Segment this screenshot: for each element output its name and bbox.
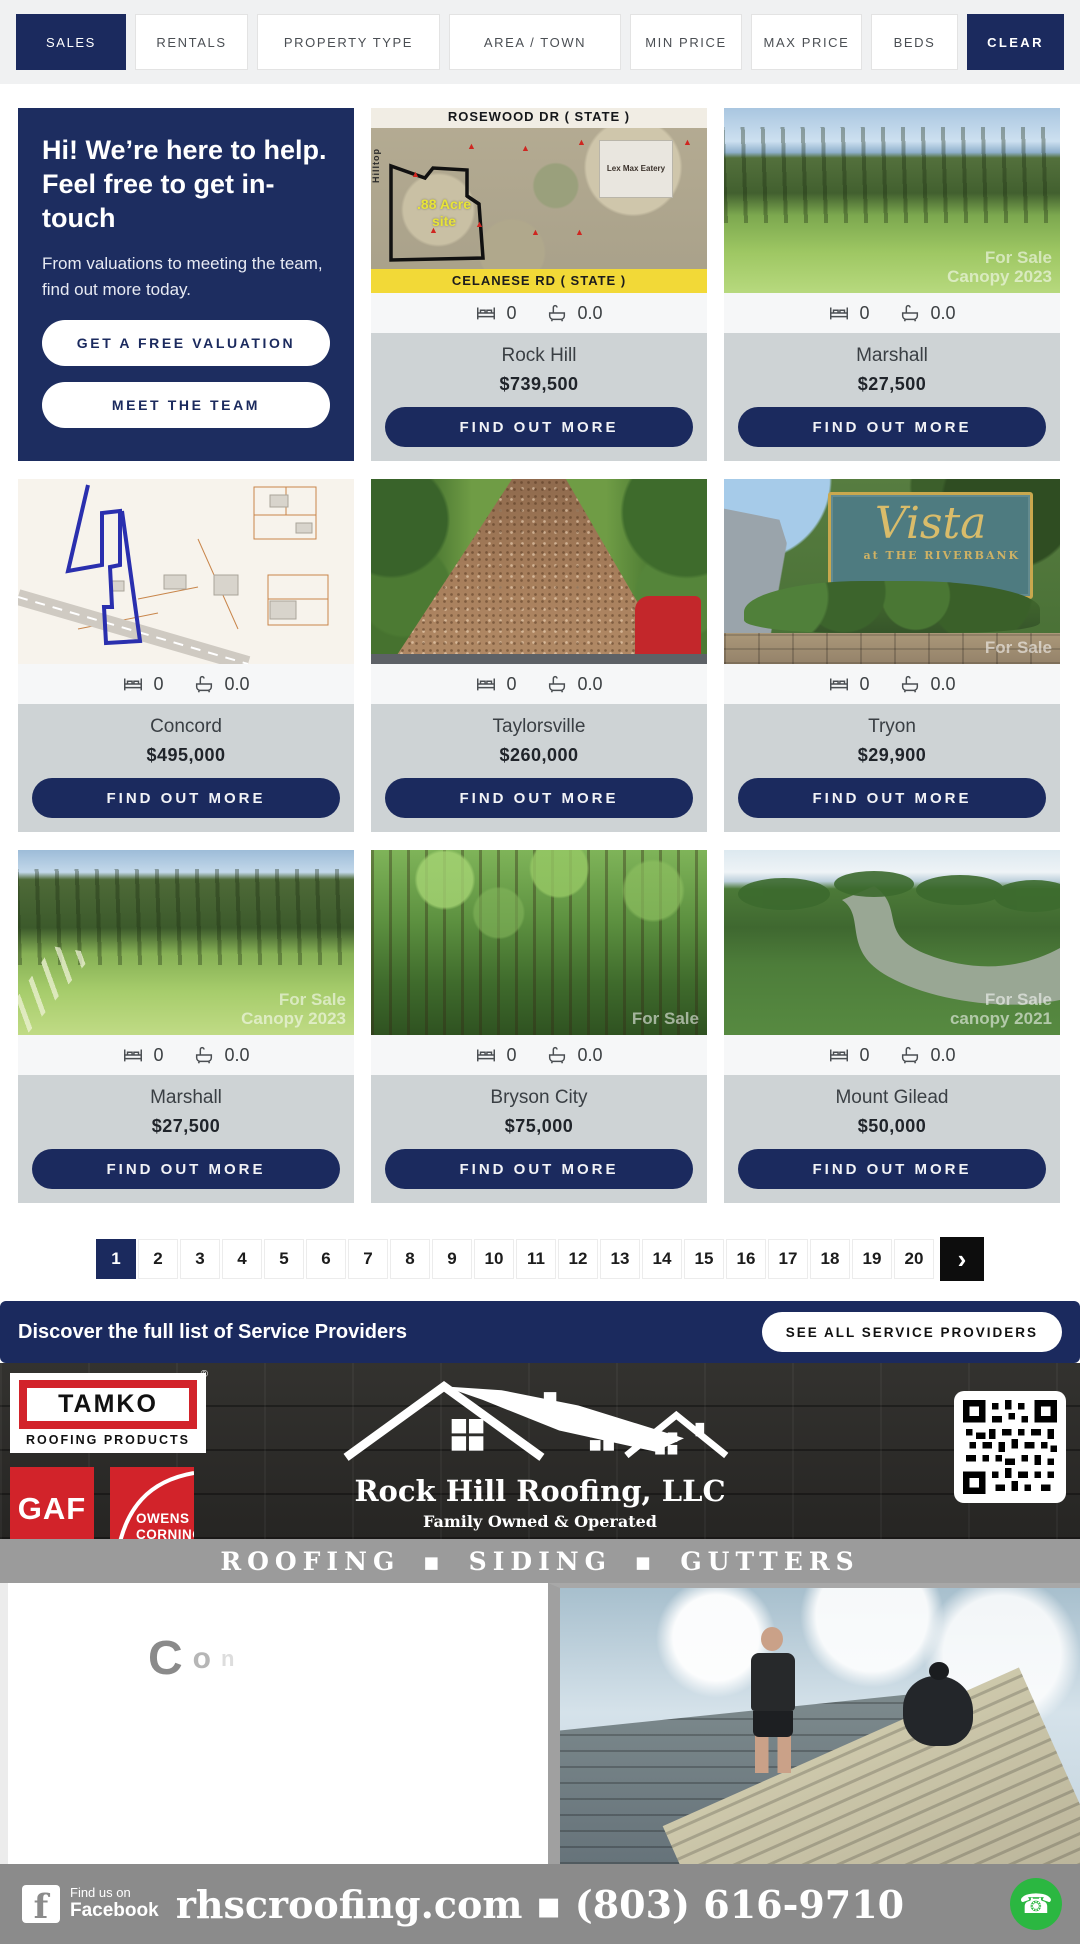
listing-info: Marshall $27,500 FIND OUT MORE xyxy=(724,333,1060,461)
meet-team-button[interactable]: MEET THE TEAM xyxy=(42,382,330,428)
listing-info: Marshall $27,500 FIND OUT MORE xyxy=(18,1075,354,1203)
find-out-more-button[interactable]: FIND OUT MORE xyxy=(32,1149,340,1189)
page-button-8[interactable]: 8 xyxy=(390,1239,430,1279)
bath-icon xyxy=(546,302,568,324)
page-button-4[interactable]: 4 xyxy=(222,1239,262,1279)
map-road-label-top: ROSEWOOD DR ( STATE ) xyxy=(371,108,707,128)
map-marker-icon: ▲ xyxy=(429,226,438,235)
baths-stat: 0.0 xyxy=(899,302,955,324)
listing-stats: 0 0.0 xyxy=(724,1035,1060,1075)
photo-watermark: For Sale xyxy=(632,1009,699,1029)
baths-stat: 0.0 xyxy=(899,673,955,695)
bed-icon xyxy=(828,673,850,695)
facebook-link[interactable]: f Find us on Facebook xyxy=(22,1885,159,1923)
page-button-13[interactable]: 13 xyxy=(600,1239,640,1279)
listing-stats: 0 0.0 xyxy=(371,1035,707,1075)
find-out-more-button[interactable]: FIND OUT MORE xyxy=(738,407,1046,447)
promo-body: From valuations to meeting the team, fin… xyxy=(42,251,330,302)
page-button-1[interactable]: 1 xyxy=(96,1239,136,1279)
listing-stats: 0 0.0 xyxy=(724,293,1060,333)
listing-photo[interactable]: For SaleCanopy 2023 xyxy=(18,850,354,1035)
roofer-standing xyxy=(747,1627,801,1777)
beds-stat: 0 xyxy=(122,673,163,695)
promo-heading: Hi! We’re here to help. Feel free to get… xyxy=(42,134,330,235)
bath-icon xyxy=(546,673,568,695)
get-valuation-button[interactable]: GET A FREE VALUATION xyxy=(42,320,330,366)
listing-info: Rock Hill $739,500 FIND OUT MORE xyxy=(371,333,707,461)
listing-stats: 0 0.0 xyxy=(371,664,707,704)
find-out-more-button[interactable]: FIND OUT MORE xyxy=(738,778,1046,818)
baths-stat: 0.0 xyxy=(546,673,602,695)
listing-photo[interactable]: Vista at THE RIVERBANK For Sale xyxy=(724,479,1060,664)
listing-stats: 0 0.0 xyxy=(18,664,354,704)
loading-text-panel: C o n xyxy=(8,1583,548,1864)
listing-photo[interactable]: For Salecanopy 2021 xyxy=(724,850,1060,1035)
listing-card: For SaleCanopy 2023 0 0.0 Marshall $27,5… xyxy=(18,850,354,1203)
listing-card: For Salecanopy 2021 0 0.0 Mount Gilead $… xyxy=(724,850,1060,1203)
lake-drawing xyxy=(724,850,1060,1035)
listing-town: Marshall xyxy=(738,345,1046,367)
chevron-right-icon: › xyxy=(958,1244,967,1275)
gaf-logo: GAF xyxy=(10,1467,94,1539)
sign-title: Vista xyxy=(841,501,1020,547)
map-marker-icon: ▲ xyxy=(577,138,586,147)
filter-max-price-dropdown[interactable]: MAX PRICE xyxy=(751,14,862,70)
listing-photo[interactable]: For SaleCanopy 2023 xyxy=(724,108,1060,293)
listing-photo[interactable] xyxy=(371,479,707,664)
beds-stat: 0 xyxy=(475,673,516,695)
listing-town: Mount Gilead xyxy=(738,1087,1046,1109)
find-out-more-button[interactable]: FIND OUT MORE xyxy=(385,407,693,447)
map-marker-icon: ▲ xyxy=(411,170,420,179)
bath-icon xyxy=(899,673,921,695)
pagination: 1234567891011121314151617181920 › xyxy=(0,1237,1080,1281)
listing-price: $29,900 xyxy=(738,745,1046,766)
filter-property-type-dropdown[interactable]: PROPERTY TYPE xyxy=(257,14,440,70)
beds-stat: 0 xyxy=(122,1044,163,1066)
bed-icon xyxy=(475,1044,497,1066)
baths-stat: 0.0 xyxy=(899,1044,955,1066)
listing-price: $739,500 xyxy=(385,374,693,395)
listing-town: Taylorsville xyxy=(385,716,693,738)
brand-logos: ® TAMKO ROOFING PRODUCTS GAF OWENS CORNI… xyxy=(10,1373,206,1539)
map-marker-icon: ▲ xyxy=(683,138,692,147)
photo-watermark: For SaleCanopy 2023 xyxy=(241,990,346,1029)
bed-icon xyxy=(122,1044,144,1066)
listing-card: 0 0.0 Concord $495,000 FIND OUT MORE xyxy=(18,479,354,832)
listing-stats: 0 0.0 xyxy=(371,293,707,333)
filter-area-town-dropdown[interactable]: AREA / TOWN xyxy=(449,14,621,70)
truck-hood xyxy=(635,596,701,656)
listing-card: For SaleCanopy 2023 0 0.0 Marshall $27,5… xyxy=(724,108,1060,461)
roofers-photo xyxy=(548,1583,1080,1864)
see-all-providers-button[interactable]: SEE ALL SERVICE PROVIDERS xyxy=(762,1312,1062,1352)
page-button-15[interactable]: 15 xyxy=(684,1239,724,1279)
stone-wall xyxy=(724,633,1060,664)
page-button-7[interactable]: 7 xyxy=(348,1239,388,1279)
filter-bar: SALES RENTALS PROPERTY TYPE AREA / TOWN … xyxy=(0,0,1080,84)
bath-icon xyxy=(546,1044,568,1066)
service-providers-banner: Discover the full list of Service Provid… xyxy=(0,1301,1080,1363)
listings-grid: Hi! We’re here to help. Feel free to get… xyxy=(0,84,1080,1203)
listing-price: $495,000 xyxy=(32,745,340,766)
whatsapp-icon: ☎ xyxy=(1019,1889,1053,1920)
listing-price: $75,000 xyxy=(385,1116,693,1137)
page-button-17[interactable]: 17 xyxy=(768,1239,808,1279)
bath-icon xyxy=(193,1044,215,1066)
roofing-company-tagline: Family Owned & Operated xyxy=(320,1512,760,1531)
facebook-icon: f xyxy=(22,1885,60,1923)
services-band-text: ROOFING ▪ SIDING ▪ GUTTERS xyxy=(220,1547,859,1576)
bed-icon xyxy=(828,302,850,324)
roofer-crouching xyxy=(903,1676,973,1746)
pagination-pages: 1234567891011121314151617181920 xyxy=(96,1239,934,1279)
listing-town: Rock Hill xyxy=(385,345,693,367)
page-button-11[interactable]: 11 xyxy=(516,1239,556,1279)
listing-info: Bryson City $75,000 FIND OUT MORE xyxy=(371,1075,707,1203)
plat-map-drawing xyxy=(18,479,354,664)
find-out-more-button[interactable]: FIND OUT MORE xyxy=(385,778,693,818)
page-button-14[interactable]: 14 xyxy=(642,1239,682,1279)
filter-clear-button[interactable]: CLEAR xyxy=(967,14,1064,70)
filter-tab-sales[interactable]: SALES xyxy=(16,14,126,70)
map-road-label-bottom: CELANESE RD ( STATE ) xyxy=(371,269,707,293)
listing-card: Vista at THE RIVERBANK For Sale 0 0.0 Tr… xyxy=(724,479,1060,832)
building-label: Lex Max Eatery xyxy=(599,140,673,198)
facebook-find-us: Find us on xyxy=(70,1886,159,1900)
owens-corning-logo: OWENS CORNING xyxy=(110,1467,194,1539)
roofline-logo-icon xyxy=(330,1371,750,1467)
roofing-company-lockup: Rock Hill Roofing, LLC Family Owned & Op… xyxy=(320,1371,760,1531)
acreage-label: .88 Acre site xyxy=(409,196,479,230)
listing-photo[interactable]: For Sale xyxy=(371,850,707,1035)
page-button-3[interactable]: 3 xyxy=(180,1239,220,1279)
listing-price: $27,500 xyxy=(32,1116,340,1137)
pagination-next-button[interactable]: › xyxy=(940,1237,984,1281)
listing-stats: 0 0.0 xyxy=(724,664,1060,704)
beds-stat: 0 xyxy=(828,302,869,324)
photo-watermark: For SaleCanopy 2023 xyxy=(947,248,1052,287)
page-button-20[interactable]: 20 xyxy=(894,1239,934,1279)
page-button-9[interactable]: 9 xyxy=(432,1239,472,1279)
page-button-18[interactable]: 18 xyxy=(810,1239,850,1279)
providers-banner-text: Discover the full list of Service Provid… xyxy=(18,1321,407,1344)
facebook-label: Facebook xyxy=(70,1901,159,1922)
baths-stat: 0.0 xyxy=(546,302,602,324)
whatsapp-button[interactable]: ☎ xyxy=(1010,1878,1062,1930)
page-button-10[interactable]: 10 xyxy=(474,1239,514,1279)
filter-beds-dropdown[interactable]: BEDS xyxy=(871,14,958,70)
bath-icon xyxy=(193,673,215,695)
bed-icon xyxy=(475,673,497,695)
listing-photo[interactable]: ROSEWOOD DR ( STATE ) Hilltop .88 Acre s… xyxy=(371,108,707,293)
page-button-12[interactable]: 12 xyxy=(558,1239,598,1279)
bath-icon xyxy=(899,302,921,324)
listing-town: Bryson City xyxy=(385,1087,693,1109)
filter-min-price-dropdown[interactable]: MIN PRICE xyxy=(630,14,742,70)
beds-stat: 0 xyxy=(475,1044,516,1066)
footer-bar: f Find us on Facebook rhscroofing.com ▪ … xyxy=(0,1864,1080,1944)
beds-stat: 0 xyxy=(828,1044,869,1066)
beds-stat: 0 xyxy=(475,302,516,324)
find-out-more-button[interactable]: FIND OUT MORE xyxy=(385,1149,693,1189)
listing-stats: 0 0.0 xyxy=(18,1035,354,1075)
map-marker-icon: ▲ xyxy=(475,220,484,229)
page-button-6[interactable]: 6 xyxy=(306,1239,346,1279)
listing-info: Tryon $29,900 FIND OUT MORE xyxy=(724,704,1060,832)
services-band: ROOFING ▪ SIDING ▪ GUTTERS xyxy=(0,1539,1080,1583)
roofing-ad-banner[interactable]: ® TAMKO ROOFING PRODUCTS GAF OWENS CORNI… xyxy=(0,1363,1080,1539)
sign-subtitle: at THE RIVERBANK xyxy=(841,549,1020,562)
listing-card: 0 0.0 Taylorsville $260,000 FIND OUT MOR… xyxy=(371,479,707,832)
map-marker-icon: ▲ xyxy=(467,142,476,151)
tamko-logo: ® TAMKO ROOFING PRODUCTS xyxy=(10,1373,206,1453)
listing-info: Concord $495,000 FIND OUT MORE xyxy=(18,704,354,832)
page-button-16[interactable]: 16 xyxy=(726,1239,766,1279)
baths-stat: 0.0 xyxy=(193,1044,249,1066)
filter-tab-rentals[interactable]: RENTALS xyxy=(135,14,248,70)
map-marker-icon: ▲ xyxy=(521,144,530,153)
listing-price: $27,500 xyxy=(738,374,1046,395)
listing-info: Taylorsville $260,000 FIND OUT MORE xyxy=(371,704,707,832)
listing-price: $260,000 xyxy=(385,745,693,766)
listing-town: Concord xyxy=(32,716,340,738)
listing-info: Mount Gilead $50,000 FIND OUT MORE xyxy=(724,1075,1060,1203)
roofing-company-name: Rock Hill Roofing, LLC xyxy=(320,1474,760,1508)
map-marker-icon: ▲ xyxy=(531,228,540,237)
map-marker-icon: ▲ xyxy=(575,228,584,237)
listing-card: ROSEWOOD DR ( STATE ) Hilltop .88 Acre s… xyxy=(371,108,707,461)
listing-price: $50,000 xyxy=(738,1116,1046,1137)
partial-word: C o n xyxy=(148,1631,234,1686)
bath-icon xyxy=(899,1044,921,1066)
listing-photo[interactable] xyxy=(18,479,354,664)
hedge xyxy=(744,581,1040,633)
listing-card: For Sale 0 0.0 Bryson City $75,000 FIND … xyxy=(371,850,707,1203)
truck-bumper xyxy=(371,654,707,664)
promo-card: Hi! We’re here to help. Feel free to get… xyxy=(18,108,354,461)
bed-icon xyxy=(475,302,497,324)
page-button-5[interactable]: 5 xyxy=(264,1239,304,1279)
find-out-more-button[interactable]: FIND OUT MORE xyxy=(738,1149,1046,1189)
beds-stat: 0 xyxy=(828,673,869,695)
map-road-label-side: Hilltop xyxy=(371,148,381,183)
qr-code xyxy=(954,1391,1066,1503)
baths-stat: 0.0 xyxy=(193,673,249,695)
listing-town: Tryon xyxy=(738,716,1046,738)
page-button-19[interactable]: 19 xyxy=(852,1239,892,1279)
page-button-2[interactable]: 2 xyxy=(138,1239,178,1279)
listing-town: Marshall xyxy=(32,1087,340,1109)
bed-icon xyxy=(828,1044,850,1066)
find-out-more-button[interactable]: FIND OUT MORE xyxy=(32,778,340,818)
baths-stat: 0.0 xyxy=(546,1044,602,1066)
bed-icon xyxy=(122,673,144,695)
bottom-section: C o n xyxy=(0,1583,1080,1864)
